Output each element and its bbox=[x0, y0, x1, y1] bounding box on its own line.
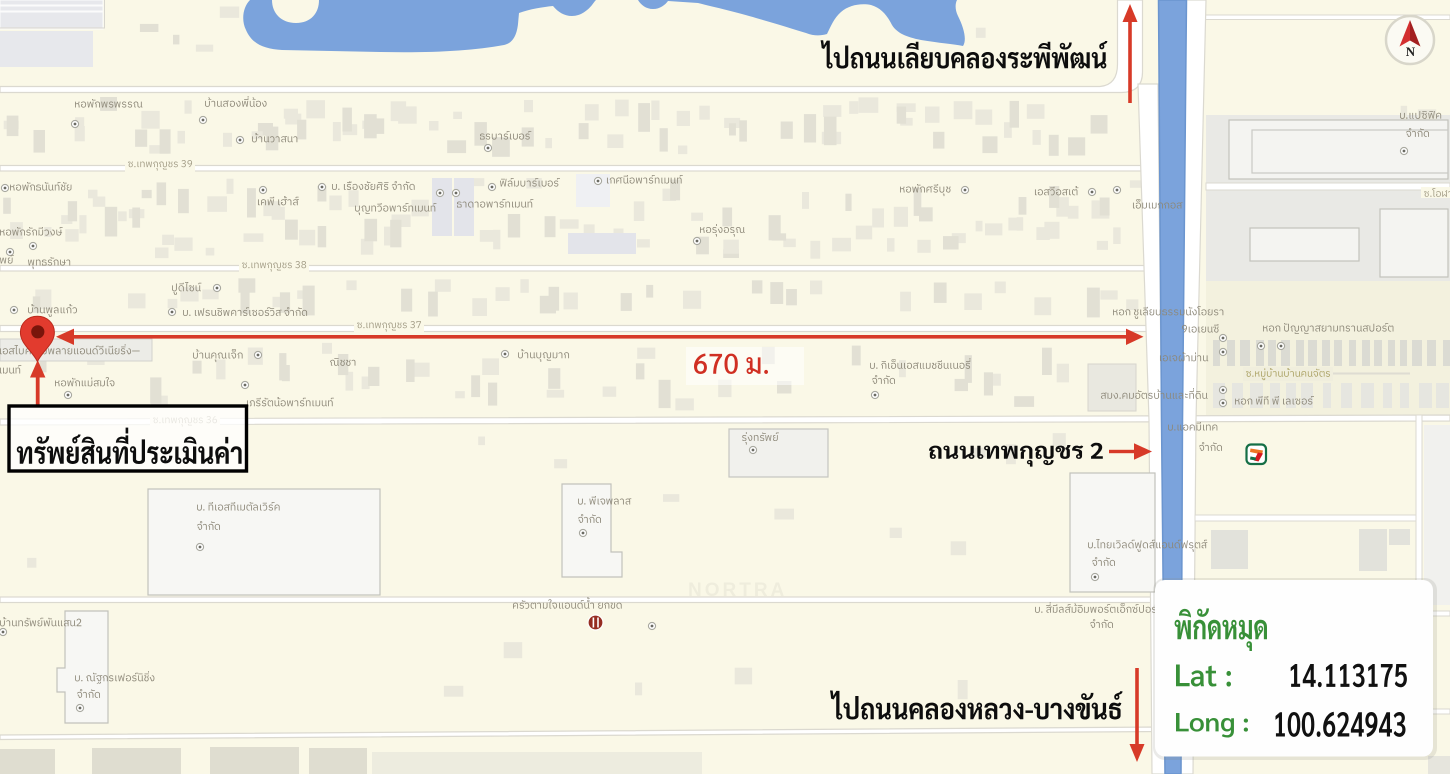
svg-text:NORTRA: NORTRA bbox=[688, 580, 787, 601]
svg-text:N: N bbox=[1406, 44, 1416, 59]
